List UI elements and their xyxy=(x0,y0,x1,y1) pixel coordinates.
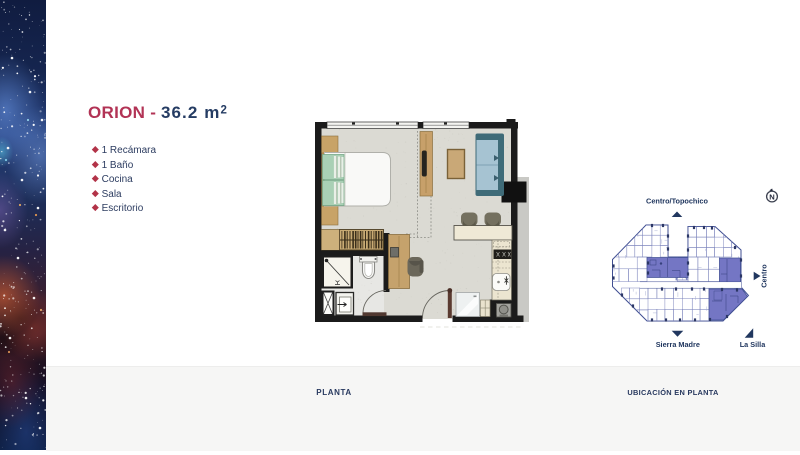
svg-text:Centro/Topochico: Centro/Topochico xyxy=(646,197,708,206)
svg-text:Sierra Madre: Sierra Madre xyxy=(656,340,700,349)
svg-text:N: N xyxy=(769,193,774,202)
svg-text:Centro: Centro xyxy=(760,264,769,288)
svg-text:La Silla: La Silla xyxy=(740,340,766,349)
